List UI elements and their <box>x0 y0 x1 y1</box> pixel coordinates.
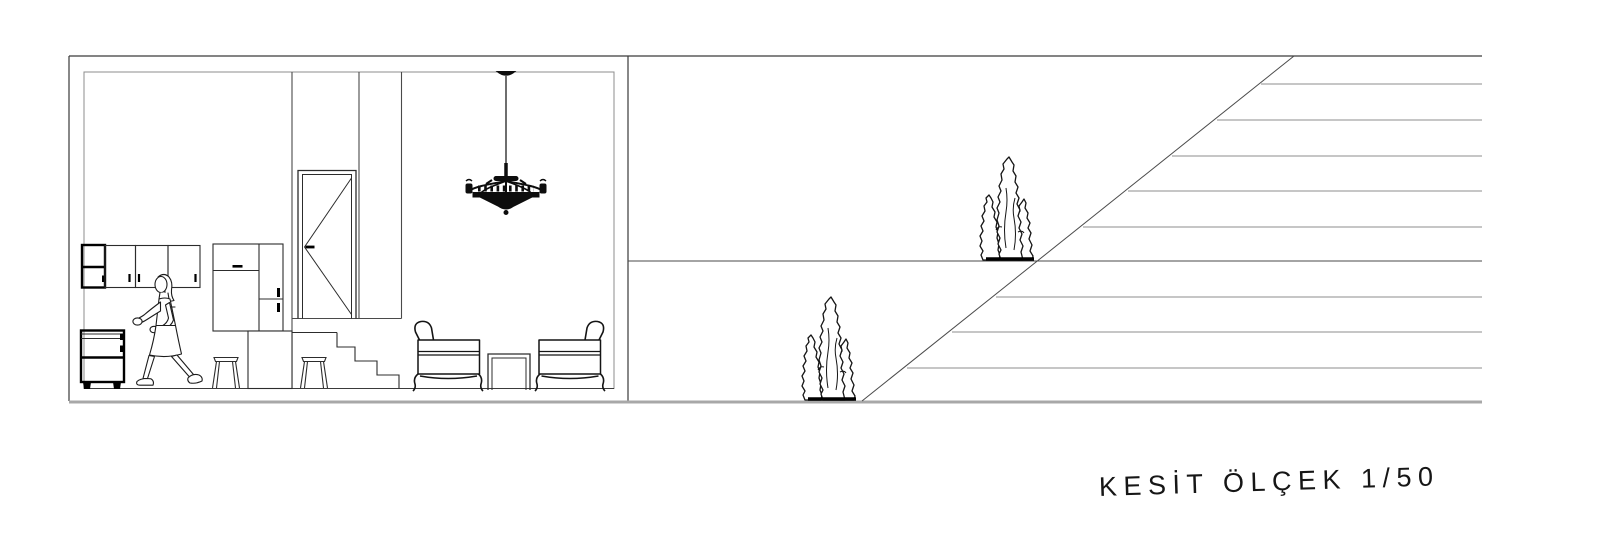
kitchen-base-cabinet <box>81 331 124 390</box>
section-drawing-svg <box>0 0 1600 537</box>
interior-door <box>298 171 356 319</box>
stairs <box>292 333 399 389</box>
armchair-right <box>535 321 605 391</box>
door-handle <box>306 246 315 249</box>
tall-cabinet <box>213 244 283 331</box>
bar-stool-right <box>301 358 328 389</box>
side-table <box>488 354 530 390</box>
section-drawing: KESİT ÖLÇEK 1/50 <box>0 0 1600 537</box>
walking-woman-figure <box>133 275 202 386</box>
fridge-handle-lower <box>277 303 280 312</box>
kitchen-wall-cabinets <box>82 245 200 288</box>
cabinet-handle <box>233 265 243 268</box>
chandelier-icon <box>466 72 546 215</box>
cypress-tree-lower <box>802 297 856 400</box>
slope-line <box>862 56 1294 401</box>
armchair-left <box>413 321 483 391</box>
cypress-tree-upper <box>980 157 1034 260</box>
fridge-handle-upper <box>277 288 280 297</box>
partition-walls <box>292 72 402 389</box>
bar-stool-left <box>213 358 240 389</box>
kitchen-island-counter <box>248 331 292 389</box>
